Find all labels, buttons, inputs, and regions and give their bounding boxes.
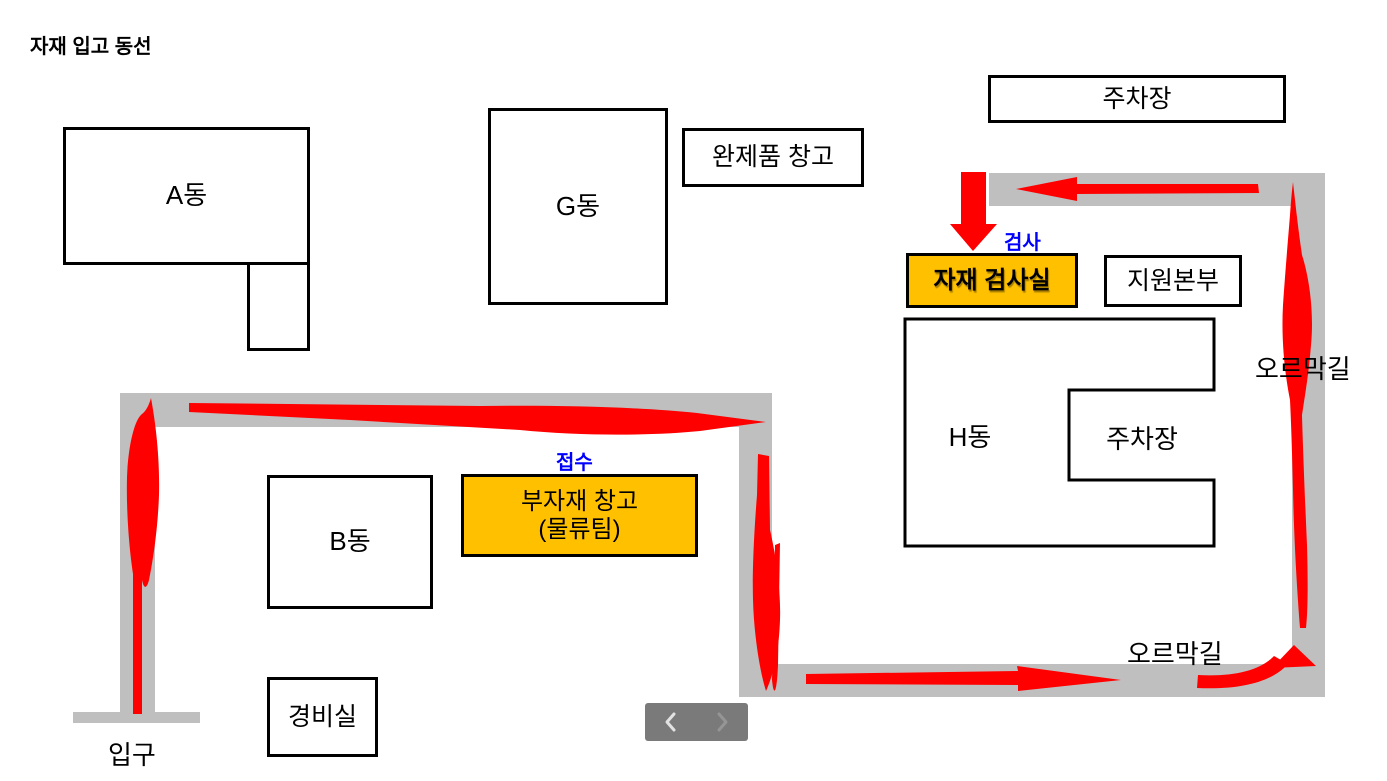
finished-goods-warehouse-label: 완제품 창고: [712, 143, 834, 172]
entrance-label: 입구: [108, 735, 156, 772]
next-slide-button[interactable]: [705, 707, 739, 737]
parking-lot-inner-label: 주차장: [1069, 422, 1215, 452]
uphill-road-bottom-label: 오르막길: [1127, 634, 1223, 671]
reception-annotation: 접수: [556, 446, 593, 475]
parking-lot-top: 주차장: [988, 75, 1286, 123]
submaterial-warehouse-sublabel: (물류팀): [538, 516, 620, 544]
site-map-canvas: 자재 입고 동선 A동 G동 완제품 창고 주차장 자재 검사실 지원본부 B동…: [0, 0, 1387, 781]
submaterial-warehouse-label: 부자재 창고: [521, 488, 638, 516]
material-inspection-room: 자재 검사실: [906, 253, 1078, 308]
page-title: 자재 입고 동선: [30, 30, 152, 59]
inspection-annotation: 검사: [1004, 226, 1041, 255]
material-inspection-room-label: 자재 검사실: [933, 267, 1050, 295]
finished-goods-warehouse: 완제품 창고: [682, 128, 864, 187]
submaterial-warehouse: 부자재 창고 (물류팀): [461, 474, 698, 557]
uphill-road-right-label: 오르막길: [1255, 349, 1351, 386]
slide-navigation-control: [645, 703, 748, 741]
building-a: A동: [63, 127, 310, 265]
support-headquarters-label: 지원본부: [1127, 267, 1219, 296]
building-b-label: B동: [329, 527, 370, 557]
chevron-right-icon: [712, 711, 732, 733]
building-g: G동: [488, 108, 668, 305]
security-office: 경비실: [267, 677, 378, 757]
parking-lot-top-label: 주차장: [1102, 85, 1171, 114]
support-headquarters: 지원본부: [1104, 255, 1242, 307]
building-h-label: H동: [905, 420, 1035, 450]
building-a-annex: [247, 262, 310, 351]
security-office-label: 경비실: [288, 703, 357, 732]
building-a-label: A동: [166, 181, 207, 211]
chevron-left-icon: [661, 711, 681, 733]
previous-slide-button[interactable]: [654, 707, 688, 737]
building-b: B동: [267, 475, 433, 609]
building-g-label: G동: [556, 192, 600, 222]
